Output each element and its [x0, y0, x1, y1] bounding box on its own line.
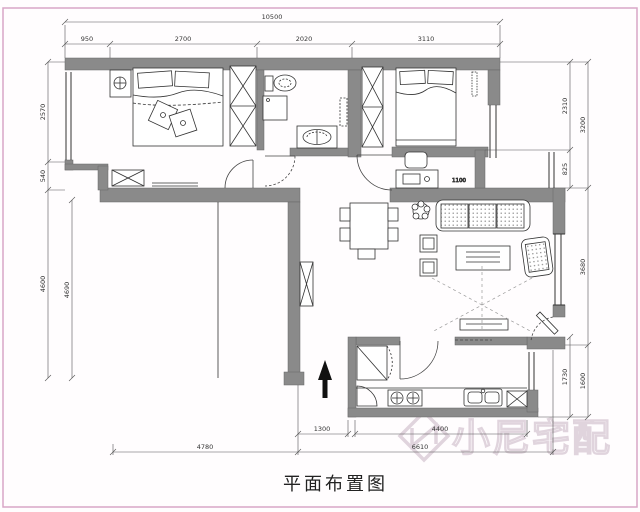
watermark-logo-icon	[400, 412, 448, 460]
entry-arrow-icon	[318, 360, 332, 398]
dim-right-3200: 3200	[579, 117, 587, 134]
dim-top-2700: 2700	[175, 35, 192, 43]
dim-bottom-6610: 6610	[412, 443, 429, 451]
wall-kitchen-west	[348, 337, 356, 417]
dim-left-inner-4690: 4690	[63, 282, 71, 299]
computer-icon	[403, 174, 420, 184]
wall-long-west	[288, 202, 300, 374]
stove	[388, 390, 422, 406]
wall-long-west-foot	[284, 372, 304, 385]
dim-right-3680: 3680	[579, 259, 587, 276]
floor-plan-canvas: 小尼宅配	[0, 0, 640, 512]
plant-icon	[412, 201, 430, 219]
coffee-table	[456, 246, 510, 270]
floor-plan-drawing: 小尼宅配	[0, 0, 640, 512]
wall-bath-east	[348, 70, 361, 157]
low-cabinet	[112, 170, 144, 186]
wall-nook-stub	[475, 150, 485, 188]
dim-bottom-4780: 4780	[197, 443, 214, 451]
door-kitchen	[400, 340, 492, 379]
window-bedroom1-west	[66, 72, 71, 160]
wall-kitchen-north-b	[455, 337, 527, 345]
wardrobe-bedroom2	[362, 67, 383, 147]
wall-kitchen-north-a	[356, 337, 400, 345]
shower-column	[340, 98, 347, 126]
kitchen	[356, 346, 527, 407]
door-bedroom1	[225, 160, 253, 188]
toilet	[265, 75, 296, 91]
dim-top-3110: 3110	[418, 35, 435, 43]
door-bathroom	[265, 156, 295, 186]
bench	[152, 183, 198, 186]
dim-left-4600: 4600	[39, 276, 47, 293]
dim-top-2020: 2020	[296, 35, 313, 43]
stool-2	[420, 259, 437, 276]
dim-right-2310: 2310	[561, 98, 569, 115]
window-kitchen-east	[529, 352, 534, 390]
window-living-east	[553, 234, 565, 305]
drawing-title: 平面布置图	[283, 474, 388, 494]
bathroom-sink	[297, 126, 337, 148]
dim-right-1600: 1600	[579, 373, 587, 390]
window-nook-east	[549, 152, 554, 188]
armchair	[521, 236, 554, 278]
bathroom	[263, 75, 347, 148]
desk-chair	[405, 152, 427, 168]
tv-unit	[460, 319, 508, 330]
wall-living-east-upper	[553, 188, 565, 234]
living-dining-room	[300, 200, 554, 332]
cabinet-x	[507, 391, 527, 407]
kitchen-sink	[464, 389, 502, 406]
wall-kitchen-east-lower	[527, 390, 538, 412]
bedroom-2	[362, 67, 477, 147]
wall-hall-north-west	[100, 188, 300, 202]
dining-table	[340, 203, 398, 259]
dim-top-950: 950	[81, 35, 93, 43]
dim-left-540: 540	[39, 170, 47, 182]
wardrobe-bedroom1	[230, 66, 256, 146]
watermark: 小尼宅配	[400, 412, 612, 460]
wall-kitchen-south	[348, 408, 538, 417]
wall-living-east-lower	[553, 305, 565, 317]
dim-right-825: 825	[561, 163, 569, 175]
door-bedroom2	[357, 155, 392, 190]
wall-west-jog-c	[98, 166, 108, 190]
double-bed-2	[396, 68, 456, 146]
bedroom-1	[110, 66, 256, 186]
wall-kitchen-ne-corner	[527, 337, 565, 349]
wall-bath-south	[290, 148, 348, 156]
radiator-icon	[472, 72, 477, 96]
wall-ne-stub	[488, 70, 500, 105]
sofa	[436, 200, 530, 231]
tv-viewing-lines	[432, 266, 532, 332]
dim-bottom-4400: 4400	[432, 425, 449, 433]
dim-right-1730: 1730	[561, 369, 569, 386]
dim-top-total: 10500	[262, 13, 283, 21]
watermark-text: 小尼宅配	[452, 416, 612, 460]
double-bed-1	[133, 68, 223, 146]
shaft-box	[300, 262, 313, 306]
stool-1	[420, 235, 437, 252]
washing-machine	[263, 96, 287, 120]
hall-desk-nook: 1100	[396, 152, 466, 188]
dim-left-2570: 2570	[39, 104, 47, 121]
dim-bottom-1300: 1300	[314, 425, 331, 433]
desk-dim-label: 1100	[452, 178, 466, 184]
corner-cabinet	[357, 386, 377, 406]
fridge	[357, 346, 392, 380]
